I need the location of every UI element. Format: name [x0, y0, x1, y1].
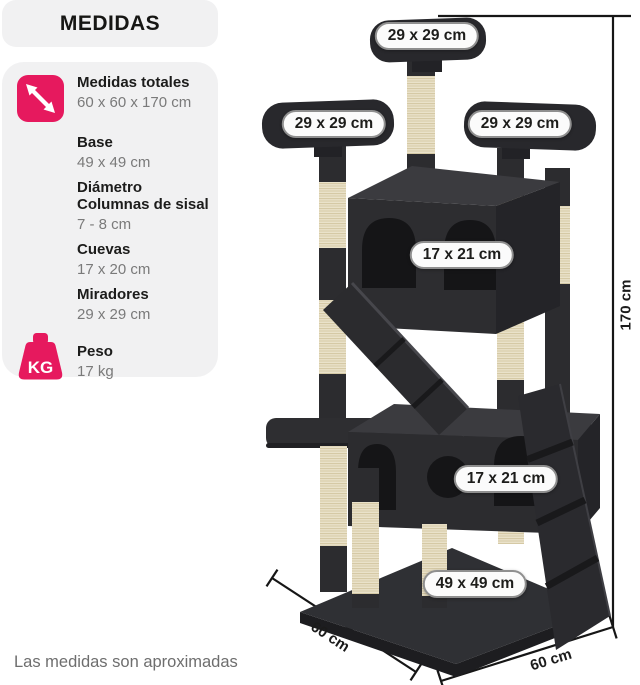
infographic-canvas: MEDIDAS Medidas totales 60 x 60 x 170 cm…: [0, 0, 640, 685]
pill-lower-cave: 17 x 21 cm: [454, 465, 558, 493]
spec-row-sisal-columns: Diámetro Columnas de sisal 7 - 8 cm: [17, 180, 218, 234]
spec-row-total: Medidas totales 60 x 60 x 170 cm: [17, 75, 218, 127]
spec-label: Medidas totales: [77, 75, 218, 92]
pill-upper-cave: 17 x 21 cm: [410, 241, 514, 269]
pill-base: 49 x 49 cm: [423, 570, 527, 598]
spec-value: 7 - 8 cm: [77, 216, 218, 234]
spec-label: Cuevas: [77, 242, 218, 259]
spec-value: 29 x 29 cm: [77, 306, 218, 324]
kg-icon-text: KG: [28, 358, 54, 377]
expand-arrows-icon: [17, 75, 64, 127]
spec-label: Peso: [77, 344, 218, 361]
pill-platform-right: 29 x 29 cm: [468, 110, 572, 138]
spec-row-weight: KG Peso 17 kg: [17, 332, 218, 389]
footnote: Las medidas son aproximadas: [14, 653, 238, 672]
spec-panel: Medidas totales 60 x 60 x 170 cm Base 49…: [2, 62, 218, 377]
dimension-height: 170 cm: [618, 280, 635, 331]
title-box: MEDIDAS: [2, 0, 218, 47]
spec-row-caves: Cuevas 17 x 20 cm: [17, 242, 218, 279]
weight-kg-icon: KG: [17, 332, 64, 389]
spec-value: 49 x 49 cm: [77, 154, 218, 172]
spec-label: Diámetro Columnas de sisal: [77, 180, 218, 214]
spec-label: Miradores: [77, 287, 218, 304]
spec-value: 17 x 20 cm: [77, 261, 218, 279]
spec-row-base: Base 49 x 49 cm: [17, 135, 218, 172]
spec-value: 60 x 60 x 170 cm: [77, 94, 218, 112]
spec-value: 17 kg: [77, 363, 218, 381]
spec-label: Base: [77, 135, 218, 152]
pill-platform-left: 29 x 29 cm: [282, 110, 386, 138]
pill-platform-top: 29 x 29 cm: [375, 22, 479, 50]
spec-row-lookouts: Miradores 29 x 29 cm: [17, 287, 218, 324]
page-title: MEDIDAS: [60, 12, 160, 36]
